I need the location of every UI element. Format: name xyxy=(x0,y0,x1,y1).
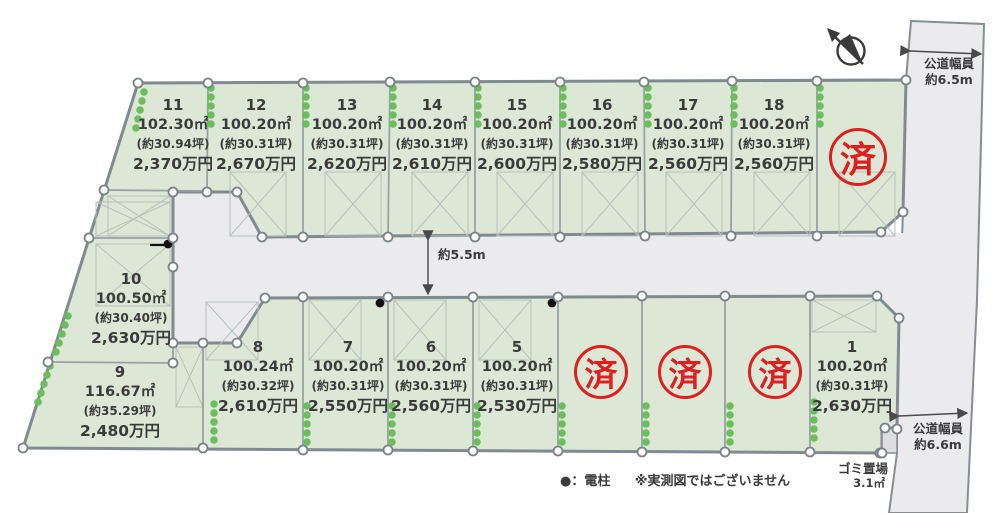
legend-disclaimer: ※実測図ではございません xyxy=(635,474,790,489)
legend-pole-symbol: ●：電柱 xyxy=(560,474,610,489)
plot-number: 10 xyxy=(91,270,171,290)
garbage-label-line2: 3.1㎡ xyxy=(826,476,888,490)
plot-tsubo: (約30.31坪) xyxy=(812,377,892,397)
plot-price: 2,610万円 xyxy=(392,155,472,175)
plot-area: 100.20㎡ xyxy=(391,358,471,378)
public-road-width-top-line2: 約6.5m xyxy=(905,72,993,88)
plot-number: 12 xyxy=(216,96,296,116)
plot-label-13: 13100.20㎡(約30.31坪)2,620万円 xyxy=(307,96,387,174)
plot-area: 100.20㎡ xyxy=(216,116,296,136)
plot-area: 100.50㎡ xyxy=(91,290,171,310)
plot-price: 2,580万円 xyxy=(562,155,642,175)
plot-tsubo: (約30.94坪) xyxy=(133,135,213,155)
internal-road-width-label: 約5.5m xyxy=(438,247,486,263)
public-road-width-label-top: 公道幅員 約6.5m xyxy=(905,56,993,88)
plot-label-8: 8100.24㎡(約30.32坪)2,610万円 xyxy=(218,338,298,416)
plot-price: 2,630万円 xyxy=(812,397,892,417)
plot-tsubo: (約30.31坪) xyxy=(648,135,728,155)
plot-label-15: 15100.20㎡(約30.31坪)2,600万円 xyxy=(477,96,557,174)
plot-area: 100.20㎡ xyxy=(307,116,387,136)
plot-tsubo: (約30.40坪) xyxy=(91,309,171,329)
plot-label-12: 12100.20㎡(約30.31坪)2,670万円 xyxy=(216,96,296,174)
plot-tsubo: (約30.32坪) xyxy=(218,377,298,397)
plot-number: 7 xyxy=(308,338,388,358)
plot-area: 100.20㎡ xyxy=(562,116,642,136)
sold-stamp: 済 xyxy=(829,128,887,186)
plot-price: 2,370万円 xyxy=(133,155,213,175)
public-road-width-top-line1: 公道幅員 xyxy=(905,56,993,72)
plot-tsubo: (約30.31坪) xyxy=(477,377,557,397)
plot-tsubo: (約35.29坪) xyxy=(80,402,160,422)
plot-tsubo: (約30.31坪) xyxy=(391,377,471,397)
plot-label-7: 7100.20㎡(約30.31坪)2,550万円 xyxy=(308,338,388,416)
plot-label-18: 18100.20㎡(約30.31坪)2,560万円 xyxy=(734,96,814,174)
plot-number: 6 xyxy=(391,338,471,358)
plot-tsubo: (約30.31坪) xyxy=(307,135,387,155)
map-legend: ●：電柱 ※実測図ではございません xyxy=(560,470,790,489)
plot-price: 2,530万円 xyxy=(477,397,557,417)
sold-stamp: 済 xyxy=(658,345,712,399)
plot-area: 100.20㎡ xyxy=(812,358,892,378)
plot-label-16: 16100.20㎡(約30.31坪)2,580万円 xyxy=(562,96,642,174)
plot-number: 14 xyxy=(392,96,472,116)
plot-price: 2,610万円 xyxy=(218,397,298,417)
sold-stamp: 済 xyxy=(748,345,802,399)
plot-price: 2,630万円 xyxy=(91,329,171,349)
plot-number: 17 xyxy=(648,96,728,116)
plot-tsubo: (約30.31坪) xyxy=(562,135,642,155)
plot-area: 100.20㎡ xyxy=(477,358,557,378)
plot-label-14: 14100.20㎡(約30.31坪)2,610万円 xyxy=(392,96,472,174)
plot-price: 2,560万円 xyxy=(734,155,814,175)
plot-label-5: 5100.20㎡(約30.31坪)2,530万円 xyxy=(477,338,557,416)
plot-area: 100.20㎡ xyxy=(477,116,557,136)
plot-tsubo: (約30.31坪) xyxy=(308,377,388,397)
plot-label-9: 9116.67㎡(約35.29坪)2,480万円 xyxy=(80,363,160,441)
plot-area: 100.20㎡ xyxy=(308,358,388,378)
public-road-width-bottom-line2: 約6.6m xyxy=(894,437,982,453)
plot-price: 2,560万円 xyxy=(648,155,728,175)
plot-number: 9 xyxy=(80,363,160,383)
plot-label-10: 10100.50㎡(約30.40坪)2,630万円 xyxy=(91,270,171,348)
plot-price: 2,560万円 xyxy=(391,397,471,417)
plot-area: 100.20㎡ xyxy=(392,116,472,136)
plot-number: 8 xyxy=(218,338,298,358)
plot-number: 18 xyxy=(734,96,814,116)
plot-price: 2,670万円 xyxy=(216,155,296,175)
plot-number: 1 xyxy=(812,338,892,358)
garbage-label-line1: ゴミ置場 xyxy=(826,462,888,476)
plot-number: 11 xyxy=(133,96,213,116)
public-road-width-bottom-line1: 公道幅員 xyxy=(894,421,982,437)
plot-price: 2,550万円 xyxy=(308,397,388,417)
plot-price: 2,600万円 xyxy=(477,155,557,175)
plot-price: 2,620万円 xyxy=(307,155,387,175)
plot-tsubo: (約30.31坪) xyxy=(392,135,472,155)
plot-tsubo: (約30.31坪) xyxy=(477,135,557,155)
sold-stamp: 済 xyxy=(574,345,628,399)
public-road-width-label-bottom: 公道幅員 約6.6m xyxy=(894,421,982,453)
plot-area: 100.20㎡ xyxy=(648,116,728,136)
plot-area: 100.20㎡ xyxy=(734,116,814,136)
plot-area: 100.24㎡ xyxy=(218,358,298,378)
plot-area: 102.30㎡ xyxy=(133,116,213,136)
plot-label-1: 1100.20㎡(約30.31坪)2,630万円 xyxy=(812,338,892,416)
land-plot-map: 11102.30㎡(約30.94坪)2,370万円12100.20㎡(約30.3… xyxy=(0,0,1005,513)
plot-label-11: 11102.30㎡(約30.94坪)2,370万円 xyxy=(133,96,213,174)
plot-label-17: 17100.20㎡(約30.31坪)2,560万円 xyxy=(648,96,728,174)
north-arrow-icon xyxy=(827,28,865,65)
plot-number: 15 xyxy=(477,96,557,116)
plot-tsubo: (約30.31坪) xyxy=(216,135,296,155)
plot-label-6: 6100.20㎡(約30.31坪)2,560万円 xyxy=(391,338,471,416)
plot-price: 2,480万円 xyxy=(80,422,160,442)
garbage-area-label: ゴミ置場 3.1㎡ xyxy=(826,462,888,490)
plot-number: 13 xyxy=(307,96,387,116)
plot-area: 116.67㎡ xyxy=(80,383,160,403)
plot-number: 16 xyxy=(562,96,642,116)
plot-number: 5 xyxy=(477,338,557,358)
plot-tsubo: (約30.31坪) xyxy=(734,135,814,155)
